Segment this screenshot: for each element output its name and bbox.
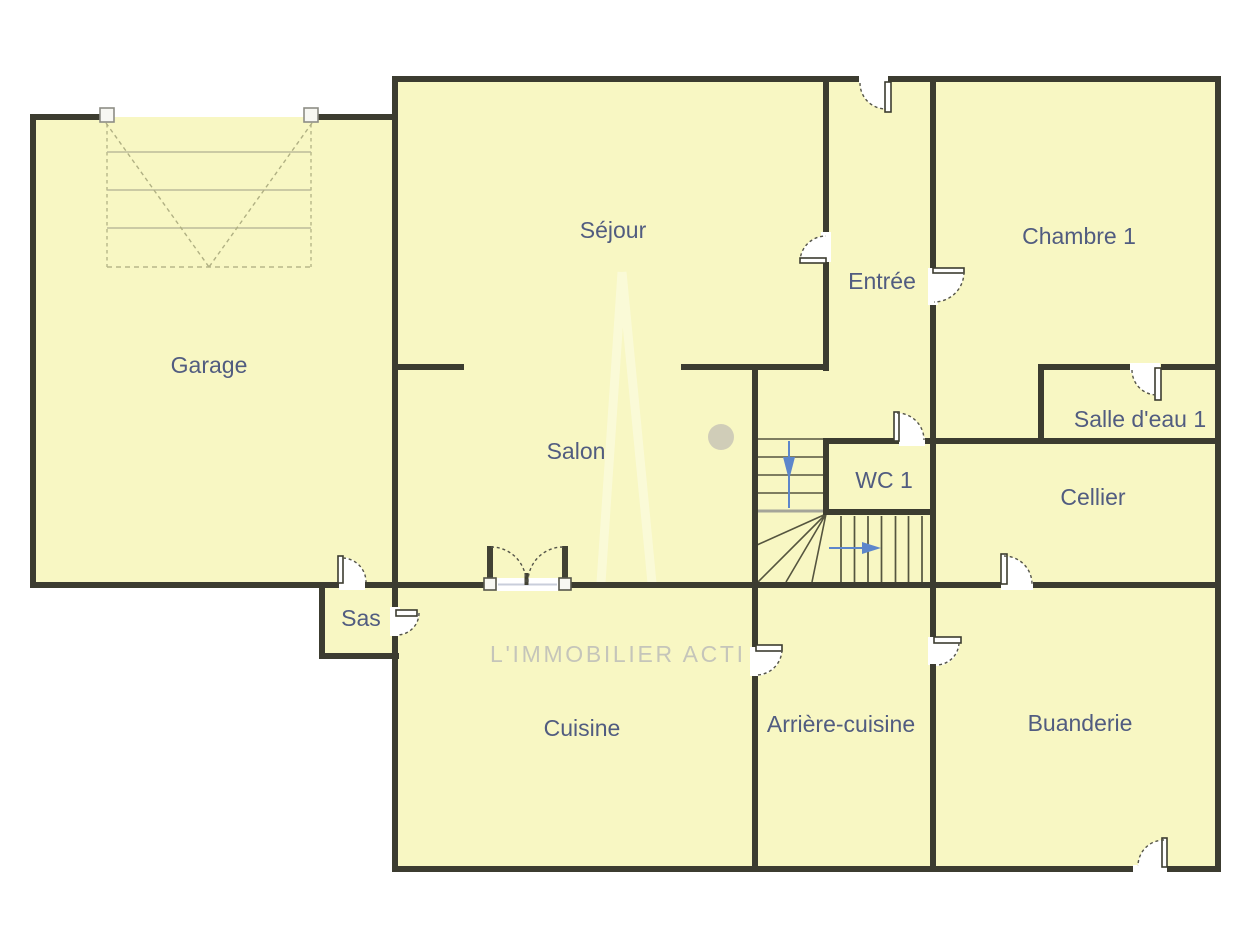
svg-text:WC 1: WC 1 [855,467,913,493]
svg-text:Chambre 1: Chambre 1 [1022,223,1136,249]
svg-text:Cellier: Cellier [1060,484,1126,510]
svg-text:Séjour: Séjour [580,217,647,243]
svg-text:Buanderie: Buanderie [1028,710,1133,736]
svg-text:Cuisine: Cuisine [544,715,621,741]
svg-text:L'IMMOBILIER ACTI: L'IMMOBILIER ACTI [490,641,743,667]
svg-text:Salle d'eau 1: Salle d'eau 1 [1074,406,1206,432]
svg-text:Salon: Salon [547,438,606,464]
svg-text:Entrée: Entrée [848,268,916,294]
svg-text:Arrière-cuisine: Arrière-cuisine [767,711,915,737]
svg-text:Sas: Sas [341,605,381,631]
svg-text:Garage: Garage [171,352,248,378]
